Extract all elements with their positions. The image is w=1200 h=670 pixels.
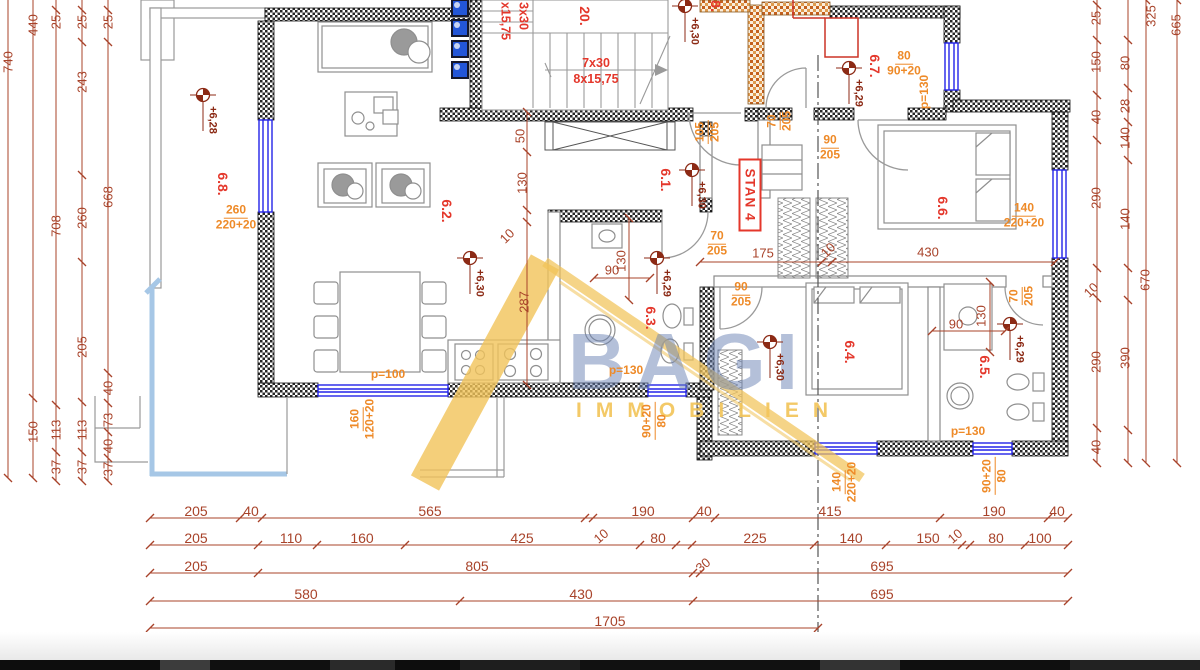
dimension-label: 670 (1139, 269, 1152, 291)
dimension-label: 150 (27, 421, 40, 443)
dimension-label: 150 (916, 531, 939, 545)
dimension-label: 695 (870, 587, 893, 601)
dimension-label: 440 (27, 14, 40, 36)
opening-size-label: 70205 (766, 109, 795, 133)
dimension-label: 37 (76, 460, 89, 474)
dimension-label: 668 (102, 186, 115, 208)
room-label: 3x30 (517, 2, 530, 30)
dimension-label: 290 (1090, 187, 1103, 209)
room-label: 6.1. (659, 168, 673, 191)
dimension-label: 708 (50, 215, 63, 237)
dimension-label: 90 (605, 264, 619, 277)
dimension-label: 28 (1119, 99, 1132, 113)
dimension-label: 290 (1090, 351, 1103, 373)
dimension-label: 805 (465, 559, 488, 573)
dimension-label: 80 (650, 531, 666, 545)
dimension-label: 565 (418, 504, 441, 518)
dimension-label: 40 (1049, 504, 1065, 518)
dimension-label: 40 (696, 504, 712, 518)
opening-size-label: 90+2080 (641, 402, 670, 440)
bottom-bar (0, 660, 1200, 670)
dimension-label: 110 (280, 531, 302, 545)
opening-size-label: 90205 (729, 281, 753, 310)
elevation-label: +6,29 (1014, 335, 1025, 363)
dimension-label: 1705 (594, 614, 625, 628)
elevation-label: +6,30 (696, 181, 707, 209)
dimension-label: 390 (1119, 347, 1132, 369)
dimension-label: 130 (516, 172, 529, 194)
opening-size-label: 90+2080 (981, 457, 1010, 495)
dimension-label: 287 (518, 291, 531, 313)
dimension-label: 430 (569, 587, 592, 601)
dimension-label: 113 (76, 420, 89, 441)
dimension-label: 10 (497, 226, 516, 245)
opening-size-label: 105205 (694, 120, 723, 144)
annotation-layer: 7404401502570811337252432602051133725668… (0, 0, 1200, 670)
dimension-label: 243 (76, 71, 89, 93)
dimension-label: 50 (514, 129, 527, 143)
dimension-label: 140 (1119, 208, 1132, 230)
dimension-label: 40 (1090, 440, 1103, 454)
room-label: 8. (709, 0, 723, 12)
dimension-label: 140 (839, 531, 862, 545)
dimension-label: 25 (50, 15, 63, 29)
dimension-label: 190 (982, 504, 1005, 518)
elevation-label: +6,30 (474, 269, 485, 297)
dimension-label: 40 (1090, 110, 1103, 124)
room-label: 6.4. (843, 340, 857, 363)
opening-size-label: 140220+20 (1002, 202, 1046, 231)
opening-size-label: p=100 (371, 368, 405, 380)
dimension-label: 113 (50, 420, 63, 441)
elevation-label: +6,30 (689, 17, 700, 45)
dimension-label: 80 (1119, 56, 1132, 70)
opening-size-label: 90205 (818, 134, 842, 163)
dimension-label: 580 (294, 587, 317, 601)
room-label: 6.5. (978, 355, 992, 378)
dimension-label: 73 (102, 413, 115, 427)
opening-size-label: 140220+20 (831, 460, 860, 504)
dimension-label: 40 (243, 504, 259, 518)
opening-size-label: 70205 (1008, 284, 1037, 308)
dimension-label: 25 (76, 15, 89, 29)
dimension-label: 740 (2, 51, 15, 73)
dimension-label: 100 (1028, 531, 1051, 545)
dimension-label: 205 (184, 559, 207, 573)
dimension-label: 415 (818, 504, 841, 518)
dimension-label: 150 (1090, 51, 1103, 73)
opening-size-label: p=130 (609, 364, 643, 376)
dimension-label: 30 (693, 555, 712, 574)
room-label: x15,75 (499, 2, 512, 40)
dimension-label: 175 (752, 247, 774, 260)
dimension-label: 10 (818, 240, 837, 259)
dimension-label: 37 (102, 462, 115, 476)
elevation-label: +6,29 (853, 79, 864, 107)
dimension-label: 10 (1081, 280, 1100, 299)
dimension-label: 25 (1090, 11, 1103, 25)
room-label: 6.2. (440, 199, 454, 222)
dimension-label: 40 (102, 439, 115, 453)
elevation-label: +6,28 (207, 106, 218, 134)
dimension-label: 205 (76, 336, 89, 358)
dimension-label: 10 (945, 526, 964, 545)
dimension-label: 425 (510, 531, 533, 545)
dimension-label: 90 (949, 318, 963, 331)
dimension-label: 140 (1119, 127, 1132, 149)
room-label: 6.6. (936, 196, 950, 219)
floor-plan-canvas: BAGI IMMOBILIEN 740440150257081133725243… (0, 0, 1200, 670)
dimension-label: 205 (184, 504, 207, 518)
elevation-label: +6,30 (774, 353, 785, 381)
dimension-label: 190 (631, 504, 654, 518)
dimension-label: 225 (743, 531, 766, 545)
dimension-label: 430 (917, 246, 939, 259)
opening-size-label: 160120+20 (349, 397, 378, 441)
dimension-label: 40 (102, 381, 115, 395)
opening-size-label: p=130 (918, 75, 930, 109)
dimension-label: 37 (50, 460, 63, 474)
dimension-label: 160 (350, 531, 373, 545)
opening-size-label: p=130 (951, 425, 985, 437)
dimension-label: 325 (1145, 5, 1158, 27)
elevation-label: +6,29 (661, 269, 672, 297)
dimension-label: 260 (76, 207, 89, 229)
dimension-label: 130 (975, 305, 988, 327)
dimension-label: 80 (988, 531, 1004, 545)
dimension-label: 25 (102, 15, 115, 29)
room-label: 20. (578, 6, 592, 25)
dimension-label: 665 (1170, 14, 1183, 36)
apartment-label: STAN 4 (739, 158, 762, 231)
room-label: 6.8. (216, 172, 230, 195)
opening-size-label: 70205 (705, 230, 729, 259)
opening-size-label: 260220+20 (214, 204, 258, 233)
dimension-label: 10 (591, 526, 610, 545)
room-label: 8x15,75 (573, 73, 618, 86)
opening-size-label: 8090+20 (885, 50, 923, 79)
page-fade (0, 632, 1200, 660)
room-label: 6.3. (644, 306, 658, 329)
room-label: 7x30 (582, 57, 610, 70)
dimension-label: 695 (870, 559, 893, 573)
room-label: 6.7. (868, 54, 882, 77)
dimension-label: 205 (184, 531, 207, 545)
